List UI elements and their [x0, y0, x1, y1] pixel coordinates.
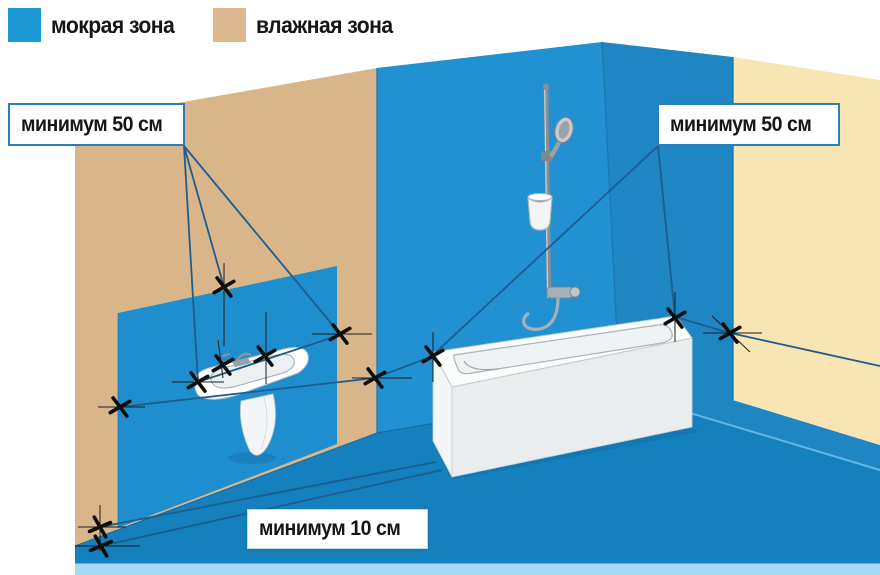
shower-mixer	[547, 287, 573, 298]
legend-item-wet-zone: мокрая зона	[8, 8, 185, 42]
legend-item-damp-zone: влажная зона	[213, 8, 404, 42]
wet-zone-swatch	[8, 8, 41, 42]
damp-zone-swatch	[213, 8, 246, 42]
damp-zone-label: влажная зона	[256, 12, 393, 39]
shower-rail-cap	[543, 84, 549, 90]
callout-text: минимум 50 см	[21, 113, 162, 137]
sink-shadow	[228, 452, 276, 464]
bathroom-zones-diagram: мокрая зона влажная зона минимум 50 см м…	[0, 0, 880, 575]
callout-text: минимум 50 см	[670, 113, 811, 137]
callout-text: минимум 10 см	[259, 517, 400, 541]
shower-mixer-knob	[570, 287, 580, 297]
scene-illustration	[0, 0, 880, 575]
callout-min-50cm-sink: минимум 50 см	[8, 103, 185, 146]
callout-min-50cm-bath: минимум 50 см	[657, 103, 840, 146]
shower-cup	[528, 198, 552, 230]
floor-edge-band	[75, 564, 880, 575]
callout-min-10cm-floor: минимум 10 см	[247, 509, 428, 549]
wet-zone-label: мокрая зона	[51, 12, 174, 39]
